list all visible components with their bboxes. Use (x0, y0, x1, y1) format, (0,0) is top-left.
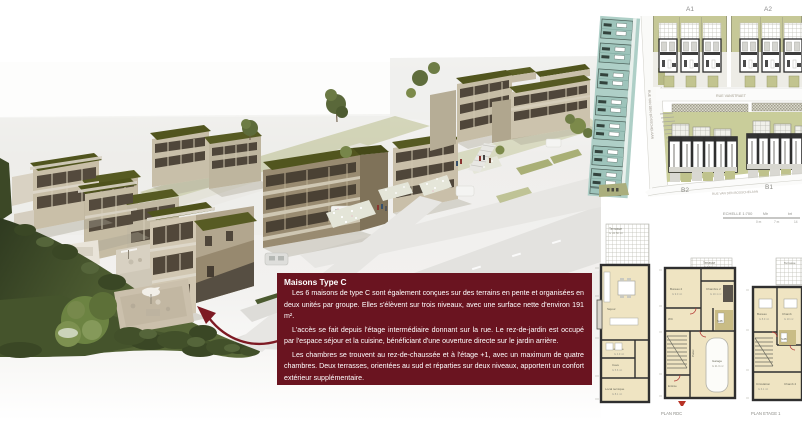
svg-text:Chambre 2: Chambre 2 (706, 287, 721, 291)
svg-text:Mtr: Mtr (763, 212, 769, 216)
svg-text:brt: brt (788, 212, 792, 216)
svg-text:SdB: SdB (781, 337, 787, 341)
svg-text:G 4.9 m²: G 4.9 m² (614, 352, 624, 356)
svg-text:WC: WC (668, 317, 674, 321)
svg-text:PLAN RDC: PLAN RDC (661, 411, 682, 416)
svg-text:B2: B2 (681, 187, 689, 194)
svg-text:Local tecnique: Local tecnique (605, 387, 625, 391)
svg-text:7 m: 7 m (774, 220, 780, 224)
svg-text:Chamb: Chamb (782, 312, 792, 316)
svg-text:A1: A1 (686, 6, 694, 13)
svg-text:G 21.6 m²: G 21.6 m² (712, 364, 724, 368)
svg-text:SdB: SdB (717, 319, 723, 323)
svg-text:Bureau 2: Bureau 2 (670, 287, 683, 291)
svg-text:Terrasse: Terrasse (784, 261, 796, 265)
svg-text:Séjour: Séjour (607, 307, 616, 311)
svg-text:Palier: Palier (691, 349, 695, 357)
svg-text:Bureau: Bureau (757, 312, 767, 316)
svg-text:G 10 m²: G 10 m² (784, 317, 794, 321)
svg-text:Cave: Cave (612, 363, 619, 367)
svg-text:0 m: 0 m (756, 220, 762, 224)
svg-text:G 34.80 m²: G 34.80 m² (609, 231, 623, 235)
svg-text:G 9.0 m²: G 9.0 m² (672, 292, 682, 296)
svg-text:G 10.1 m²: G 10.1 m² (710, 292, 722, 296)
svg-text:G 6.1 m²: G 6.1 m² (758, 387, 768, 391)
svg-text:PLAN ETAGE 1: PLAN ETAGE 1 (751, 411, 781, 416)
svg-text:B1: B1 (765, 184, 773, 191)
svg-text:A2: A2 (764, 6, 772, 13)
svg-text:14: 14 (794, 220, 798, 224)
svg-text:Entrée: Entrée (668, 384, 677, 388)
svg-text:G 8.1 m²: G 8.1 m² (612, 392, 622, 396)
svg-text:Circulation: Circulation (756, 382, 771, 386)
svg-text:Garage: Garage (712, 359, 722, 363)
svg-text:G 8.9 m²: G 8.9 m² (759, 317, 769, 321)
svg-text:RUE VANSTRAET: RUE VANSTRAET (716, 94, 747, 98)
svg-text:Chamb 2: Chamb 2 (784, 382, 797, 386)
svg-text:Terrasse: Terrasse (703, 261, 715, 265)
svg-text:ECHELLE 1:700: ECHELLE 1:700 (723, 211, 753, 216)
svg-text:G 5.6 m²: G 5.6 m² (612, 368, 622, 372)
